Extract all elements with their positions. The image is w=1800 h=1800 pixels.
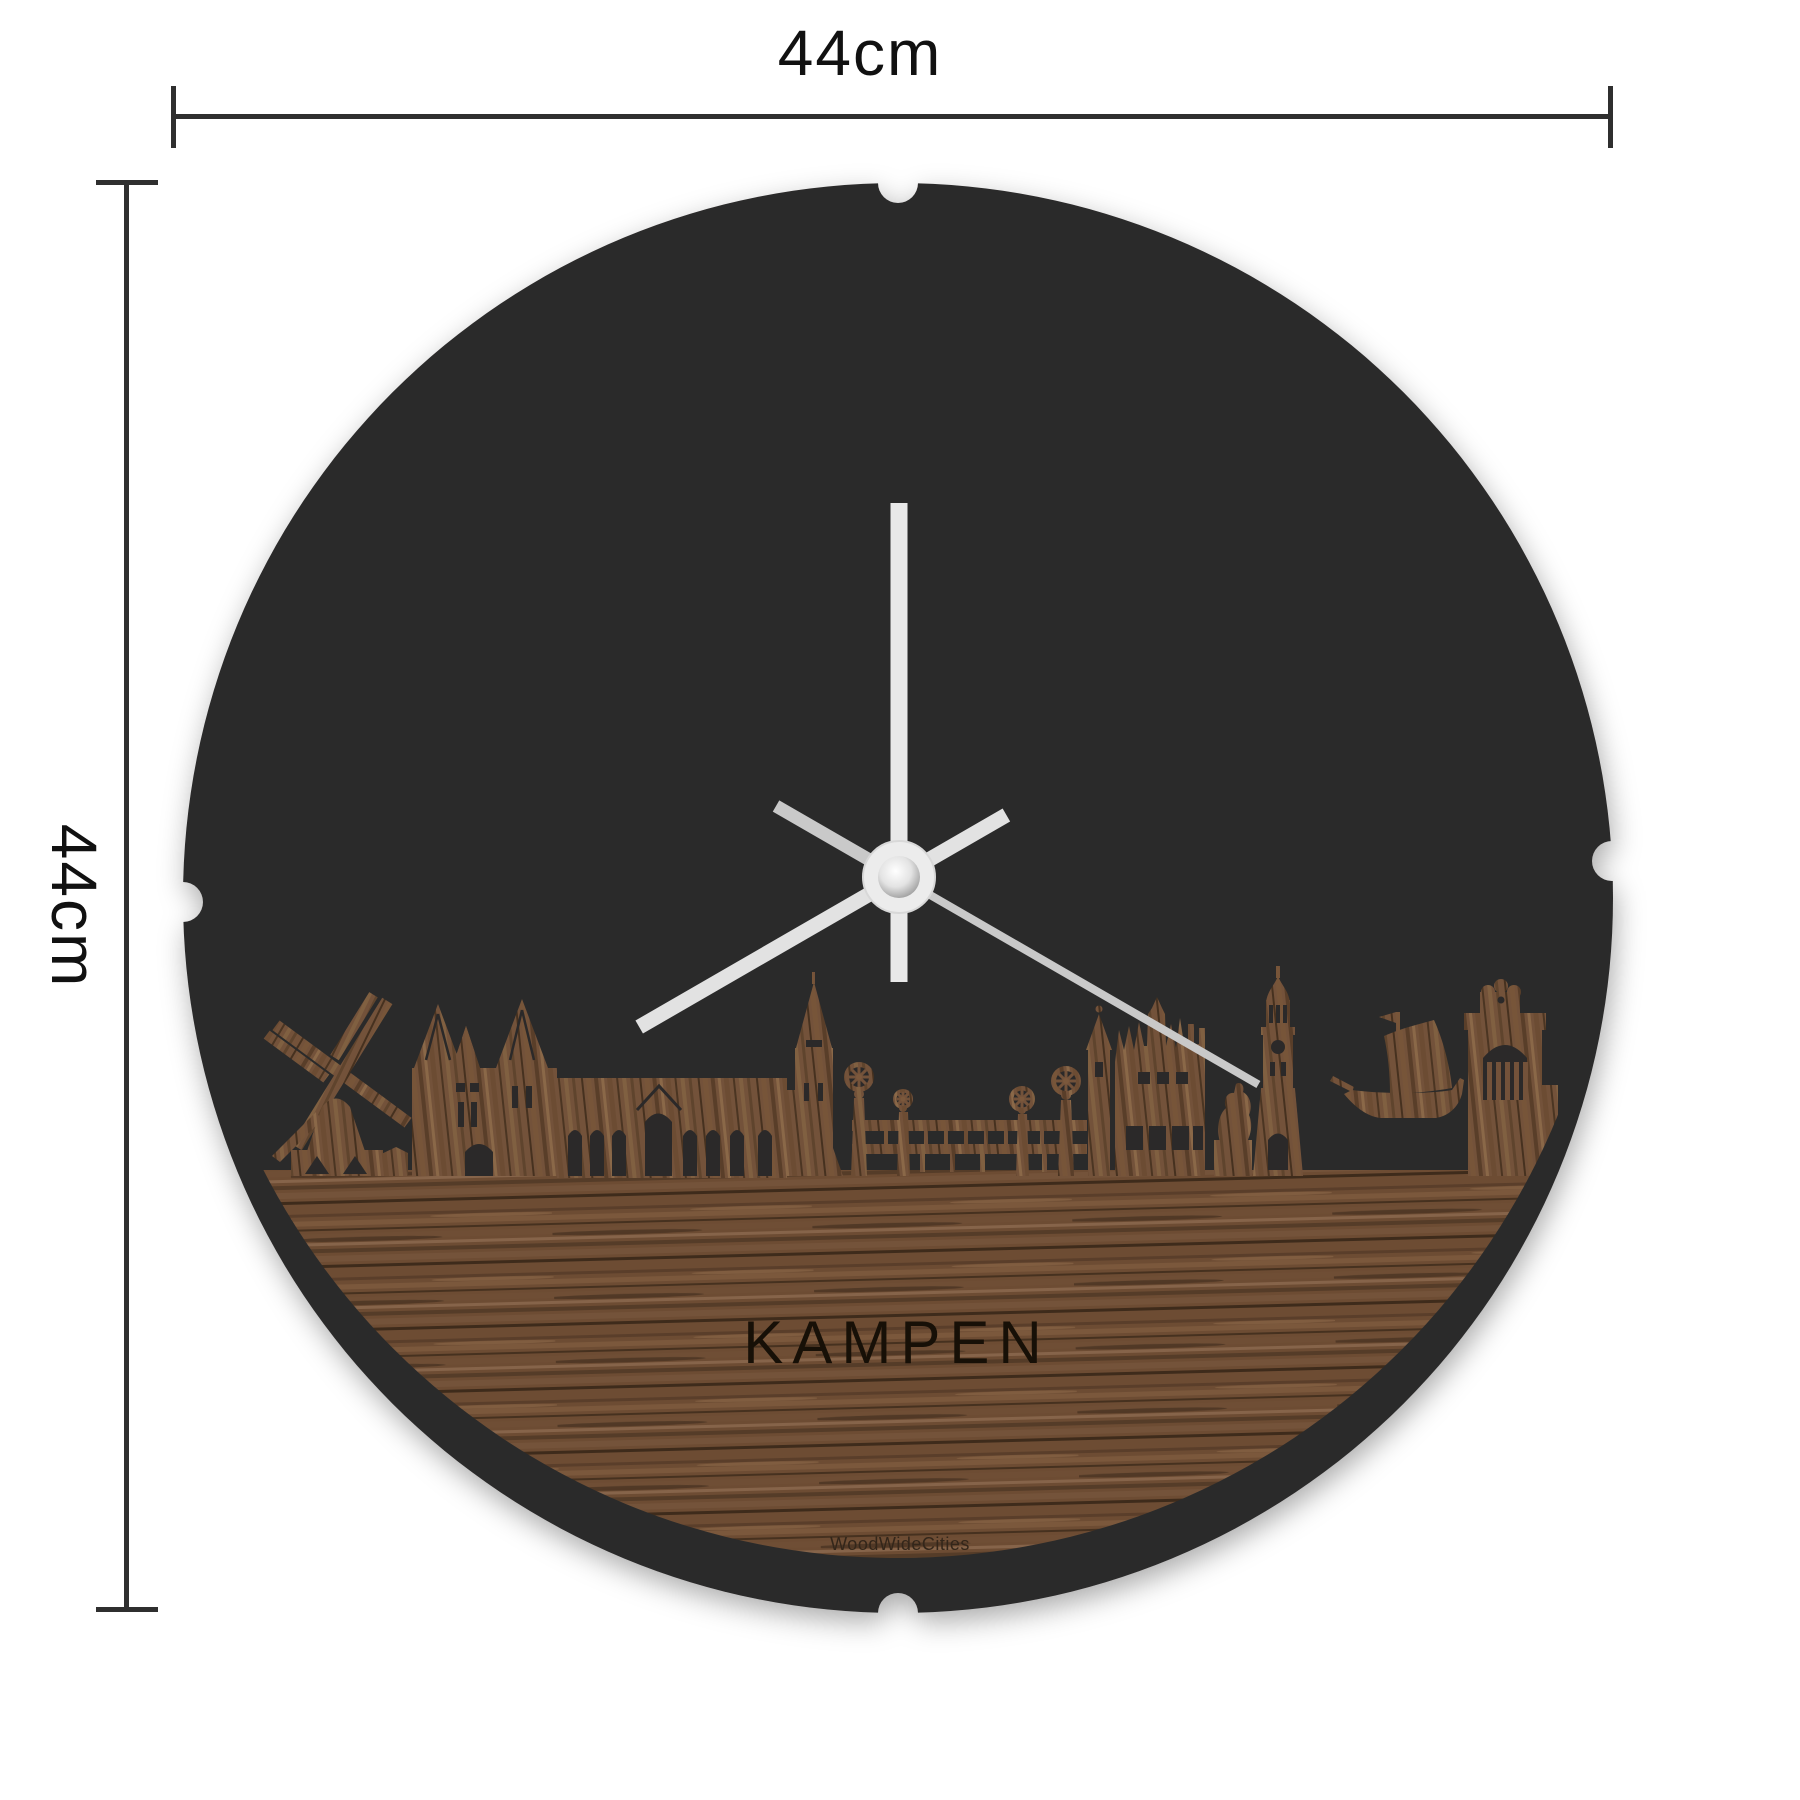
- height-dimension-line: [124, 182, 129, 1612]
- height-dimension-label: 44cm: [37, 824, 111, 989]
- width-dimension-label: 44cm: [778, 16, 943, 90]
- brand-engraving: WoodWideCities: [830, 1534, 970, 1555]
- arcade-building: [557, 1078, 787, 1178]
- width-dimension-tick-right: [1608, 86, 1613, 148]
- product-photo: KAMPEN WoodWideCities 44cm 44cm: [0, 0, 1800, 1800]
- height-dimension-tick-top: [96, 180, 158, 185]
- clock-graphic: [0, 0, 1800, 1800]
- width-dimension-line: [174, 114, 1612, 119]
- hub-knob: [878, 856, 920, 898]
- width-dimension-tick-left: [171, 86, 176, 148]
- height-dimension-tick-bottom: [96, 1607, 158, 1612]
- clock-hub: [863, 841, 935, 913]
- city-name-engraving: KAMPEN: [743, 1308, 1050, 1377]
